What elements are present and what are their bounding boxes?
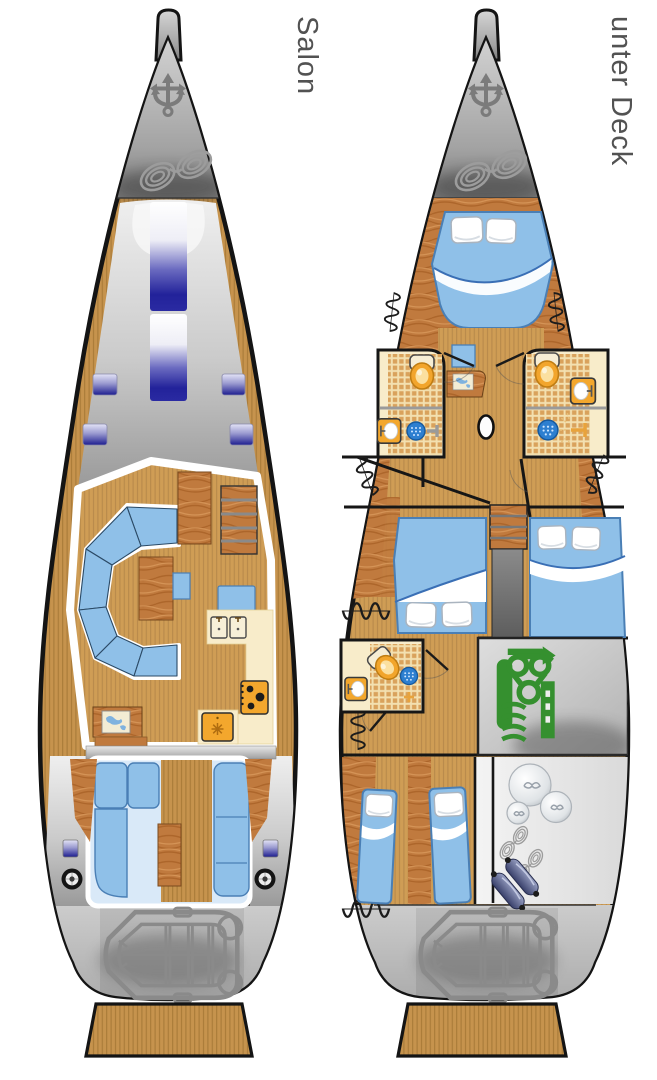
yacht-floorplan: Salon unter Deck xyxy=(0,0,657,1080)
shower-drain-icon xyxy=(400,667,417,684)
pillow-icon xyxy=(486,218,516,243)
cockpit-table xyxy=(158,824,181,886)
pillow-icon xyxy=(434,792,464,817)
side-hatch-port xyxy=(63,840,78,857)
starboard-double-cabin xyxy=(530,518,625,637)
winch-icon-starboard xyxy=(255,869,276,890)
swim-platform xyxy=(86,1004,252,1056)
side-hatch-starboard xyxy=(263,840,278,857)
sideboard xyxy=(178,472,211,544)
cockpit xyxy=(70,758,272,906)
port-head xyxy=(377,350,444,457)
pillow-icon xyxy=(442,602,472,627)
starboard-head xyxy=(524,350,608,457)
wardrobe-spring-icon xyxy=(384,291,401,332)
companionway-stairs xyxy=(490,505,527,549)
winch-icon-port xyxy=(62,869,83,890)
companionway-stairs-top xyxy=(221,486,257,554)
chart-map-icon xyxy=(102,711,130,733)
pillow-icon xyxy=(538,526,567,550)
nav-seat xyxy=(218,586,255,613)
sink-icon xyxy=(571,378,596,404)
toilet-icon xyxy=(535,353,559,387)
stove-icon xyxy=(241,681,268,714)
pillow-icon xyxy=(451,217,483,244)
table-extension xyxy=(173,573,190,599)
deck-label-salon: Salon xyxy=(290,16,323,95)
chart-table xyxy=(93,707,147,749)
chart-map-icon xyxy=(453,374,473,390)
port-double-cabin xyxy=(394,518,486,633)
deck-label-unter-deck: unter Deck xyxy=(604,16,637,166)
pillow-icon xyxy=(572,527,601,551)
shower-drain-icon xyxy=(407,422,425,440)
pillow-icon xyxy=(406,602,436,627)
toilet-icon xyxy=(410,355,434,389)
shower-drain-icon xyxy=(538,420,558,440)
engine-trunk xyxy=(492,549,523,638)
salon-room xyxy=(70,461,273,749)
mast-base xyxy=(479,416,494,439)
sink-icon xyxy=(377,419,400,443)
pillow-icon xyxy=(365,794,393,817)
swim-platform xyxy=(398,1004,566,1056)
salon-table xyxy=(139,557,173,620)
sink-icon xyxy=(345,678,367,701)
fridge-icon xyxy=(202,713,233,741)
aft-head xyxy=(341,640,423,712)
salon-deck-plan xyxy=(0,0,328,1080)
